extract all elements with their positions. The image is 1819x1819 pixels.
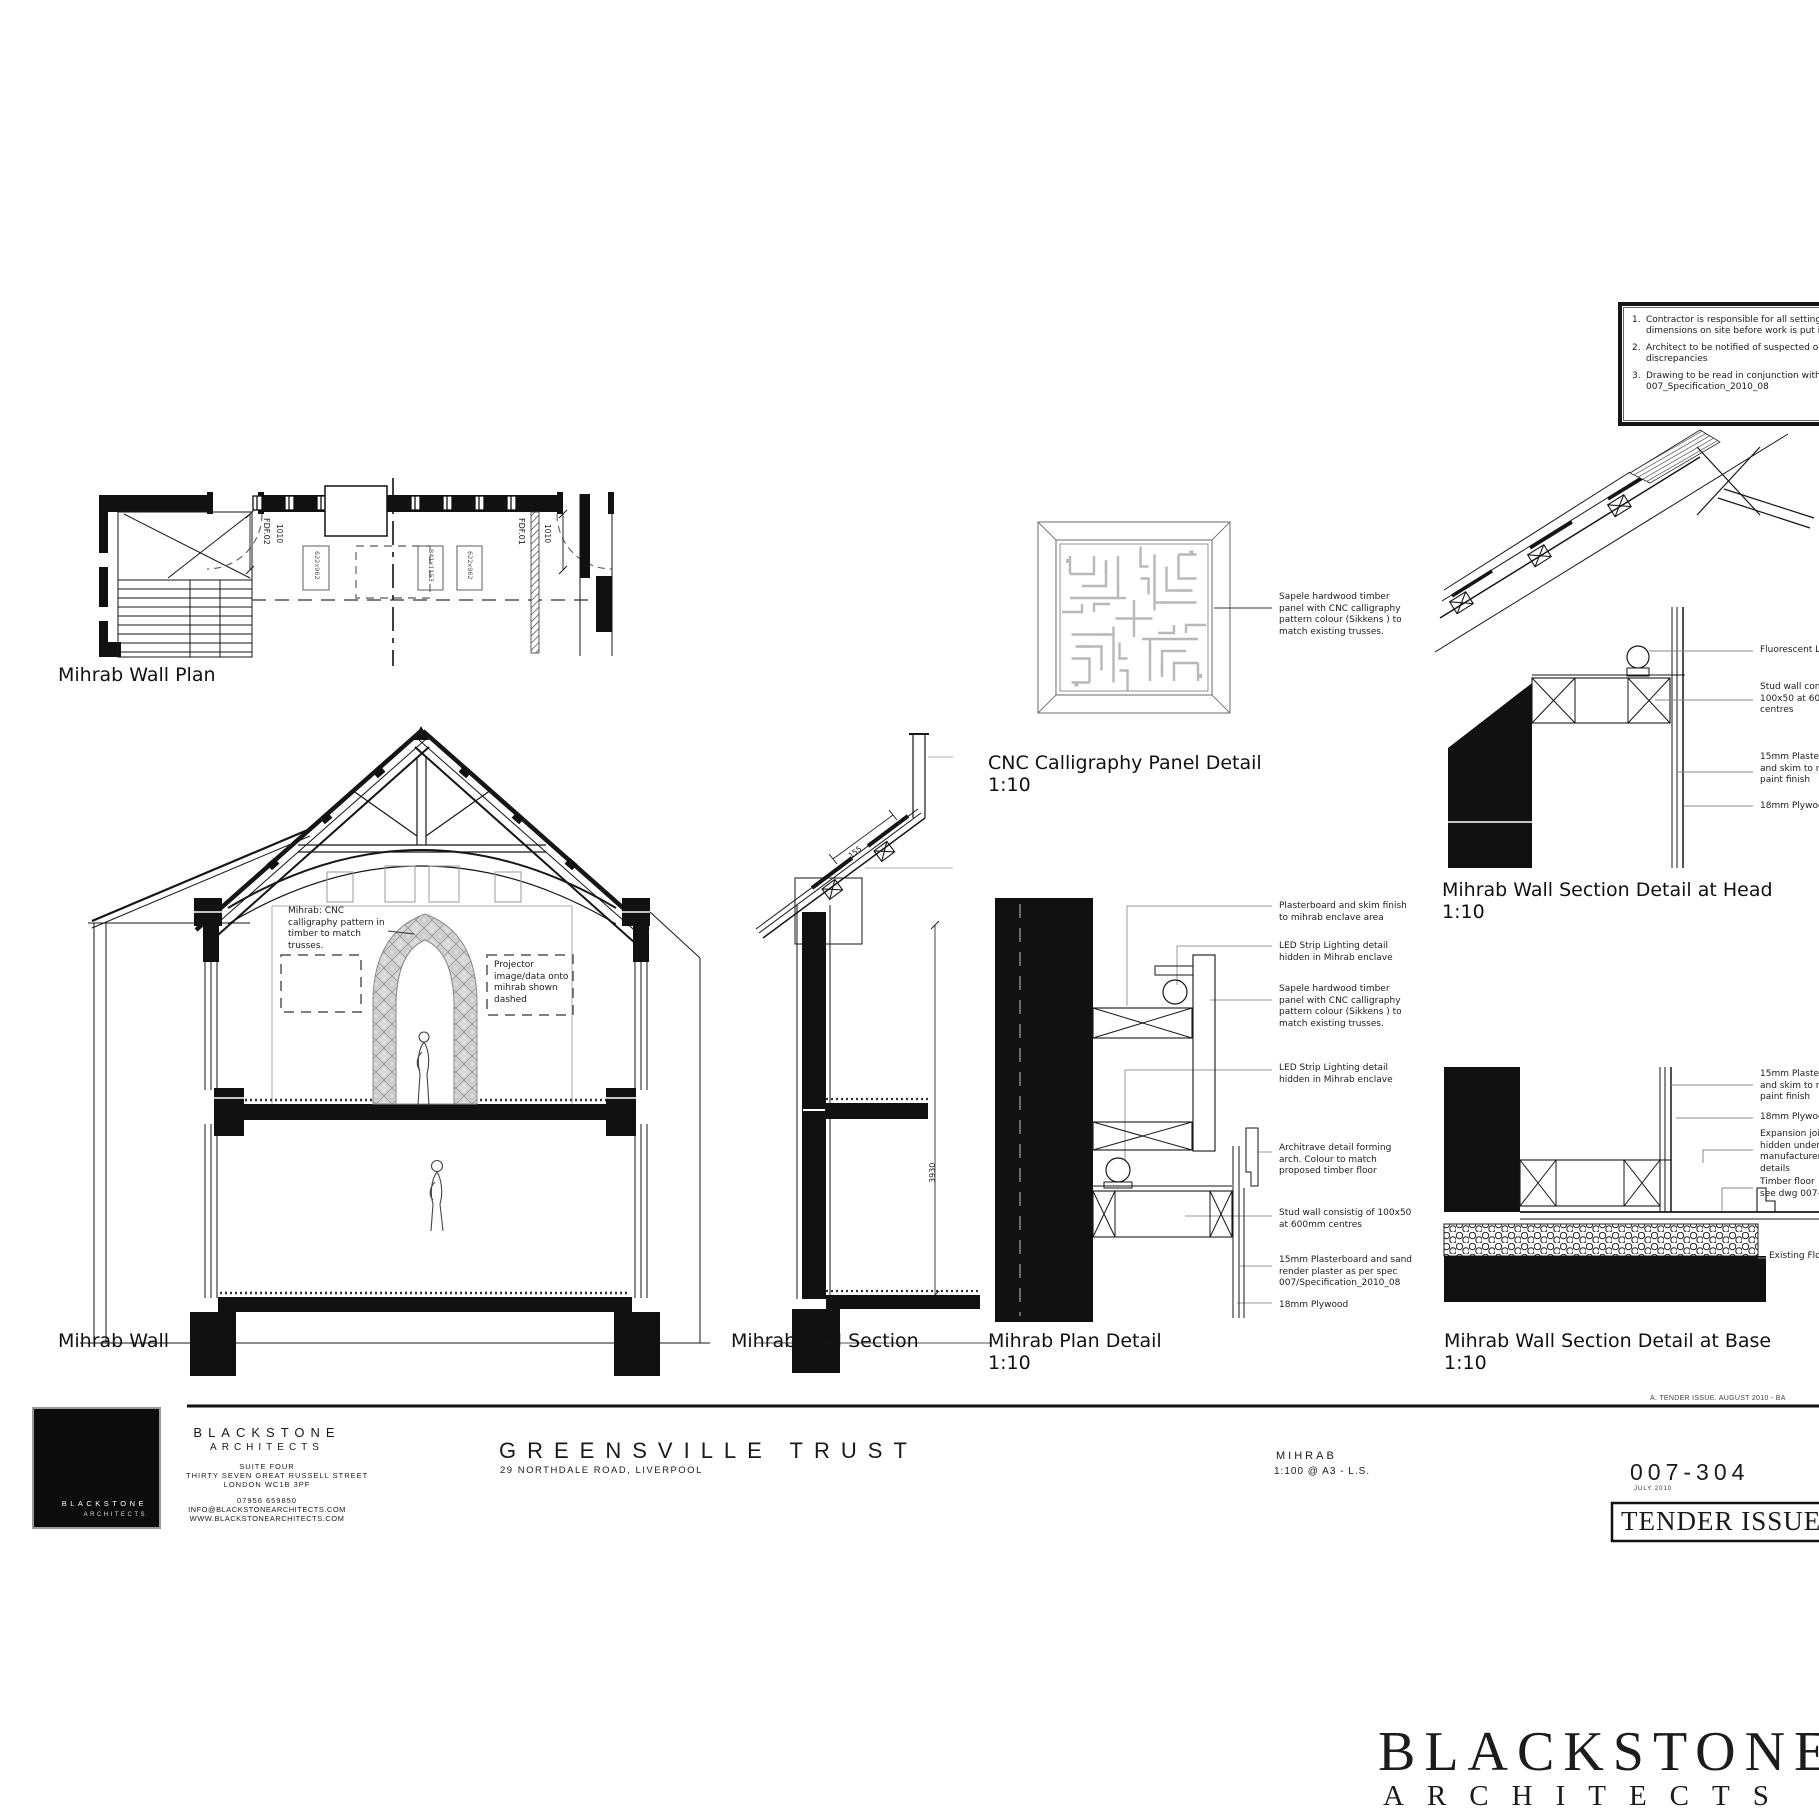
drawing-scale: 1:100 @ A3 - L.S.	[1274, 1466, 1370, 1477]
note-item: 1. Contractor is responsible for all set…	[1632, 315, 1819, 337]
pd-label-led-2: LED Strip Lighting detail hidden in Mihr…	[1279, 1063, 1429, 1086]
note-text: Architect to be notified of suspected om…	[1646, 343, 1819, 365]
section-caption: Mihrab Wall Section	[731, 1330, 919, 1352]
door-tag-fdf02: FDF.02	[261, 518, 273, 545]
panel-size-tag: 622x962	[311, 551, 323, 580]
firm-phone: 07956 659850	[186, 1496, 348, 1505]
note-text: Drawing to be read in conjunction with s…	[1646, 371, 1819, 393]
door-dim-right: 1010	[542, 524, 554, 543]
general-notes-box: 1. Contractor is responsible for all set…	[1618, 302, 1819, 426]
note-number: 2.	[1632, 343, 1646, 365]
revision-note: A. TENDER ISSUE. AUGUST 2010 - BA	[1650, 1395, 1786, 1402]
base-label-plywood: 18mm Plywood	[1760, 1112, 1819, 1124]
general-notes-inner: 1. Contractor is responsible for all set…	[1623, 307, 1819, 421]
brand-wordmark-sub: ARCHITECTS	[1383, 1780, 1792, 1813]
head-label-fluorescent: Fluorescent Light	[1760, 645, 1819, 657]
firm-name: BLACKSTONE	[186, 1425, 348, 1440]
firm-address-1: SUITE FOUR	[186, 1462, 348, 1471]
head-label-plasterboard: 15mm Plasterboard and skim to receive pa…	[1760, 752, 1819, 787]
logo-square-sub: ARCHITECTS	[40, 1512, 147, 1518]
pd-label-led-1: LED Strip Lighting detail hidden in Mihr…	[1279, 941, 1429, 964]
base-label-expansion: Expansion joint hidden under manufacture…	[1760, 1129, 1819, 1175]
drawing-date: JULY 2010	[1634, 1486, 1672, 1492]
firm-address-3: LONDON WC1B 3PF	[186, 1480, 348, 1489]
pd-label-plasterboard: Plasterboard and skim finish to mihrab e…	[1279, 901, 1429, 924]
head-caption: Mihrab Wall Section Detail at Head	[1442, 879, 1773, 901]
projector-note: Projector image/data onto mihrab shown d…	[494, 960, 574, 1006]
cnc-panel-drawing	[1038, 522, 1272, 713]
note-number: 1.	[1632, 315, 1646, 337]
plan-detail-scale: 1:10	[988, 1352, 1031, 1374]
panel-size-tag: 622x962	[464, 551, 476, 580]
head-scale: 1:10	[1442, 901, 1485, 923]
plan-caption: Mihrab Wall Plan	[58, 664, 216, 686]
firm-email: INFO@BLACKSTONEARCHITECTS.COM	[186, 1505, 348, 1514]
cnc-scale: 1:10	[988, 774, 1031, 796]
logo-square-name: BLACKSTONE	[40, 1499, 147, 1508]
note-item: 2. Architect to be notified of suspected…	[1632, 343, 1819, 365]
pd-label-plywood: 18mm Plywood	[1279, 1300, 1429, 1312]
plan-detail-drawing	[995, 898, 1272, 1322]
brand-wordmark: BLACKSTONE	[1378, 1720, 1819, 1784]
project-address: 29 NORTHDALE ROAD, LIVERPOOL	[500, 1465, 703, 1476]
plan-detail-caption: Mihrab Plan Detail	[988, 1330, 1162, 1352]
base-caption: Mihrab Wall Section Detail at Base	[1444, 1330, 1771, 1352]
sheet-linework	[0, 0, 1819, 1819]
sapele-note: Sapele hardwood timber panel with CNC ca…	[1279, 592, 1414, 638]
base-scale: 1:10	[1444, 1352, 1487, 1374]
pd-label-architrave: Architrave detail forming arch. Colour t…	[1279, 1143, 1429, 1178]
base-label-timber-floor: Timber floor see dwg 007-	[1760, 1177, 1819, 1200]
note-item: 3. Drawing to be read in conjunction wit…	[1632, 371, 1819, 393]
drawing-sheet: 1. Contractor is responsible for all set…	[0, 0, 1819, 1819]
mihrab-wall-elevation-drawing	[80, 726, 710, 1376]
mihrab-wall-plan-drawing	[99, 478, 614, 666]
head-label-plywood: 18mm Plywood	[1760, 801, 1819, 813]
firm-block: BLACKSTONE ARCHITECTS SUITE FOUR THIRTY …	[186, 1425, 348, 1523]
elevation-caption: Mihrab Wall	[58, 1330, 169, 1352]
drawing-number: 007-304	[1630, 1459, 1749, 1486]
section-height-dim: 3930	[927, 1163, 939, 1183]
firm-sub: ARCHITECTS	[186, 1442, 348, 1453]
pd-label-sapele: Sapele hardwood timber panel with CNC ca…	[1279, 984, 1429, 1030]
door-dim-left: 1010	[274, 524, 286, 543]
firm-address-2: THIRTY SEVEN GREAT RUSSELL STREET	[186, 1471, 348, 1480]
pd-label-render: 15mm Plasterboard and sand render plaste…	[1279, 1255, 1439, 1290]
cnc-caption: CNC Calligraphy Panel Detail	[988, 752, 1262, 774]
panel-size-tag: 841x1153	[425, 549, 437, 582]
project-title: GREENSVILLE TRUST	[499, 1438, 918, 1464]
drawing-title: MIHRAB	[1276, 1450, 1337, 1462]
base-label-existing-floor: Existing Floor	[1769, 1251, 1819, 1263]
status-stamp: TENDER ISSUE	[1621, 1506, 1819, 1537]
pd-label-studwall: Stud wall consistig of 100x50 at 600mm c…	[1279, 1208, 1439, 1231]
firm-web: WWW.BLACKSTONEARCHITECTS.COM	[186, 1514, 348, 1523]
base-label-plasterboard: 15mm Plasterboard and skim to receive pa…	[1760, 1069, 1819, 1104]
note-text: Contractor is responsible for all settin…	[1646, 315, 1819, 337]
mihrab-wall-section-drawing	[756, 734, 992, 1373]
head-detail-drawing	[1435, 430, 1814, 868]
head-label-studwall: Stud wall consisting 100x50 at 600mm cen…	[1760, 682, 1819, 717]
note-number: 3.	[1632, 371, 1646, 393]
mihrab-cnc-note: Mihrab: CNC calligraphy pattern in timbe…	[288, 906, 403, 952]
door-tag-fdf01: FDF.01	[516, 518, 528, 545]
